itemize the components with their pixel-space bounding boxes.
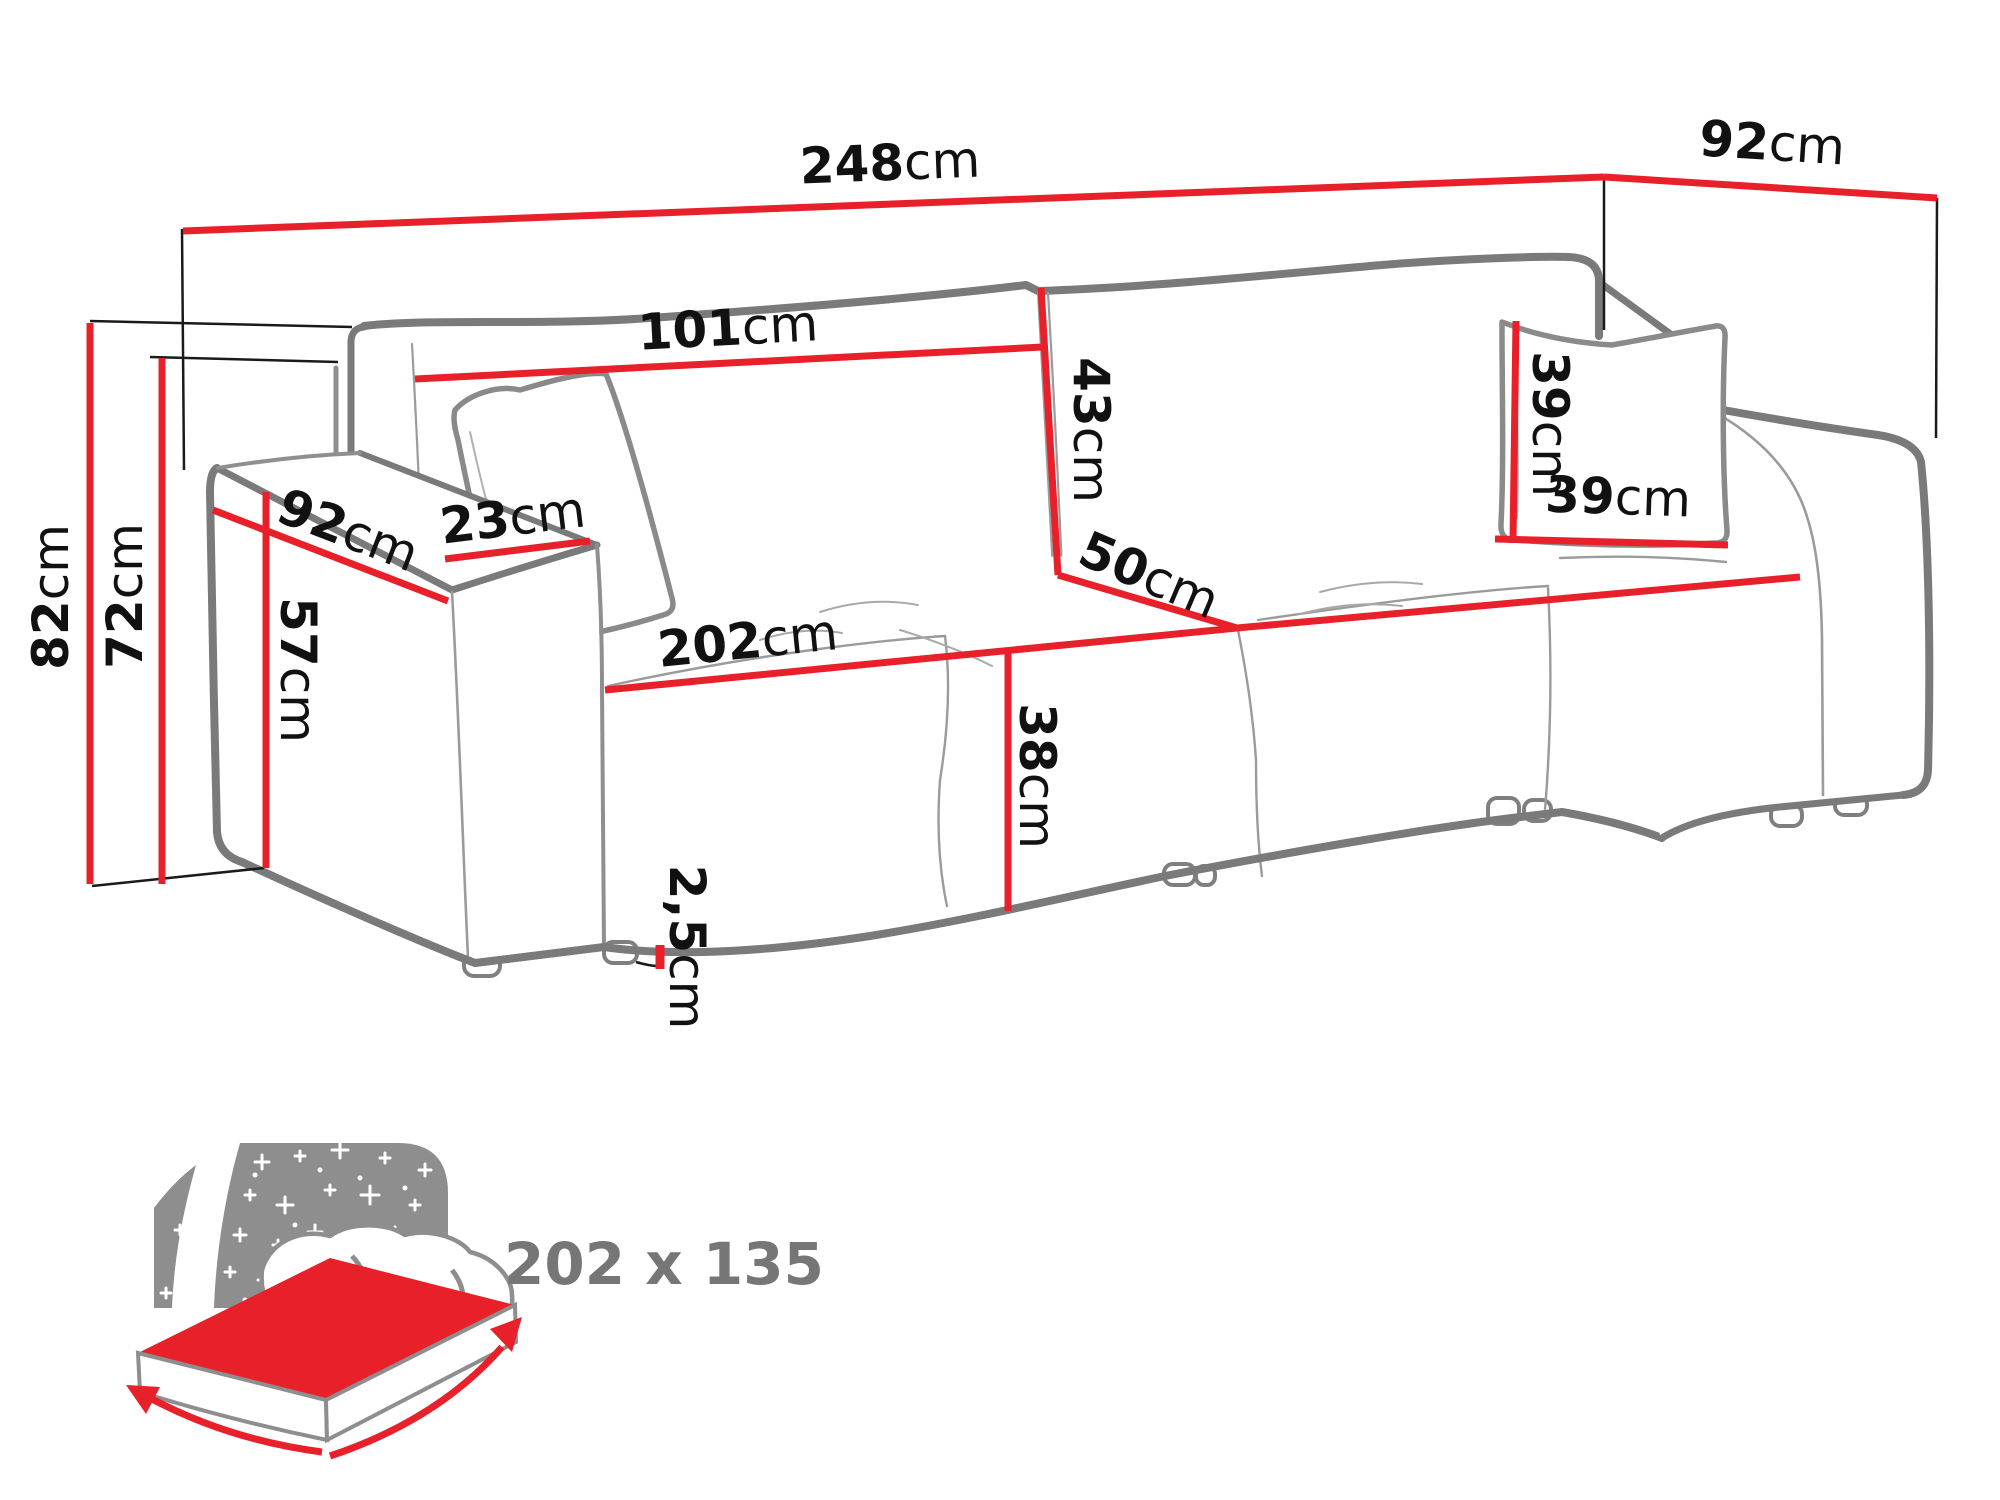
label-backrest-cushion-width: 101cm (636, 294, 819, 361)
label-total-width: 248cm (799, 130, 982, 195)
dim-line-pillow-height (1513, 321, 1516, 543)
ext-total-depth-right (1936, 198, 1937, 438)
sleeping-function-icon: 202 x 135 (126, 1142, 824, 1456)
label-total-depth: 92cm (1698, 109, 1847, 176)
label-armrest-height: 57cm (270, 597, 328, 743)
label-seat-height: 38cm (1009, 703, 1067, 849)
diagram-canvas: 248cm 92cm 101cm 43cm 50cm 39cm 39cm 92c… (0, 0, 2000, 1500)
ext-height-bottom (92, 868, 264, 886)
label-total-height: 82cm (22, 524, 80, 670)
dim-line-total-depth (1604, 177, 1937, 198)
ext-total-height-top (90, 321, 352, 327)
ext-backrest-height-top (150, 357, 338, 362)
label-backrest-cushion-height: 43cm (1063, 357, 1121, 503)
ext-total-width-left (182, 229, 184, 470)
ext-leg-height (636, 962, 658, 966)
night-sky-sliver (154, 1165, 196, 1308)
sofa-dimensions-diagram: 248cm 92cm 101cm 43cm 50cm 39cm 39cm 92c… (0, 0, 2000, 1500)
label-backrest-height: 72cm (96, 523, 154, 669)
label-leg-height: 2,5cm (659, 865, 717, 1030)
bed-size-label: 202 x 135 (504, 1230, 824, 1298)
label-pillow-width: 39cm (1544, 465, 1692, 528)
